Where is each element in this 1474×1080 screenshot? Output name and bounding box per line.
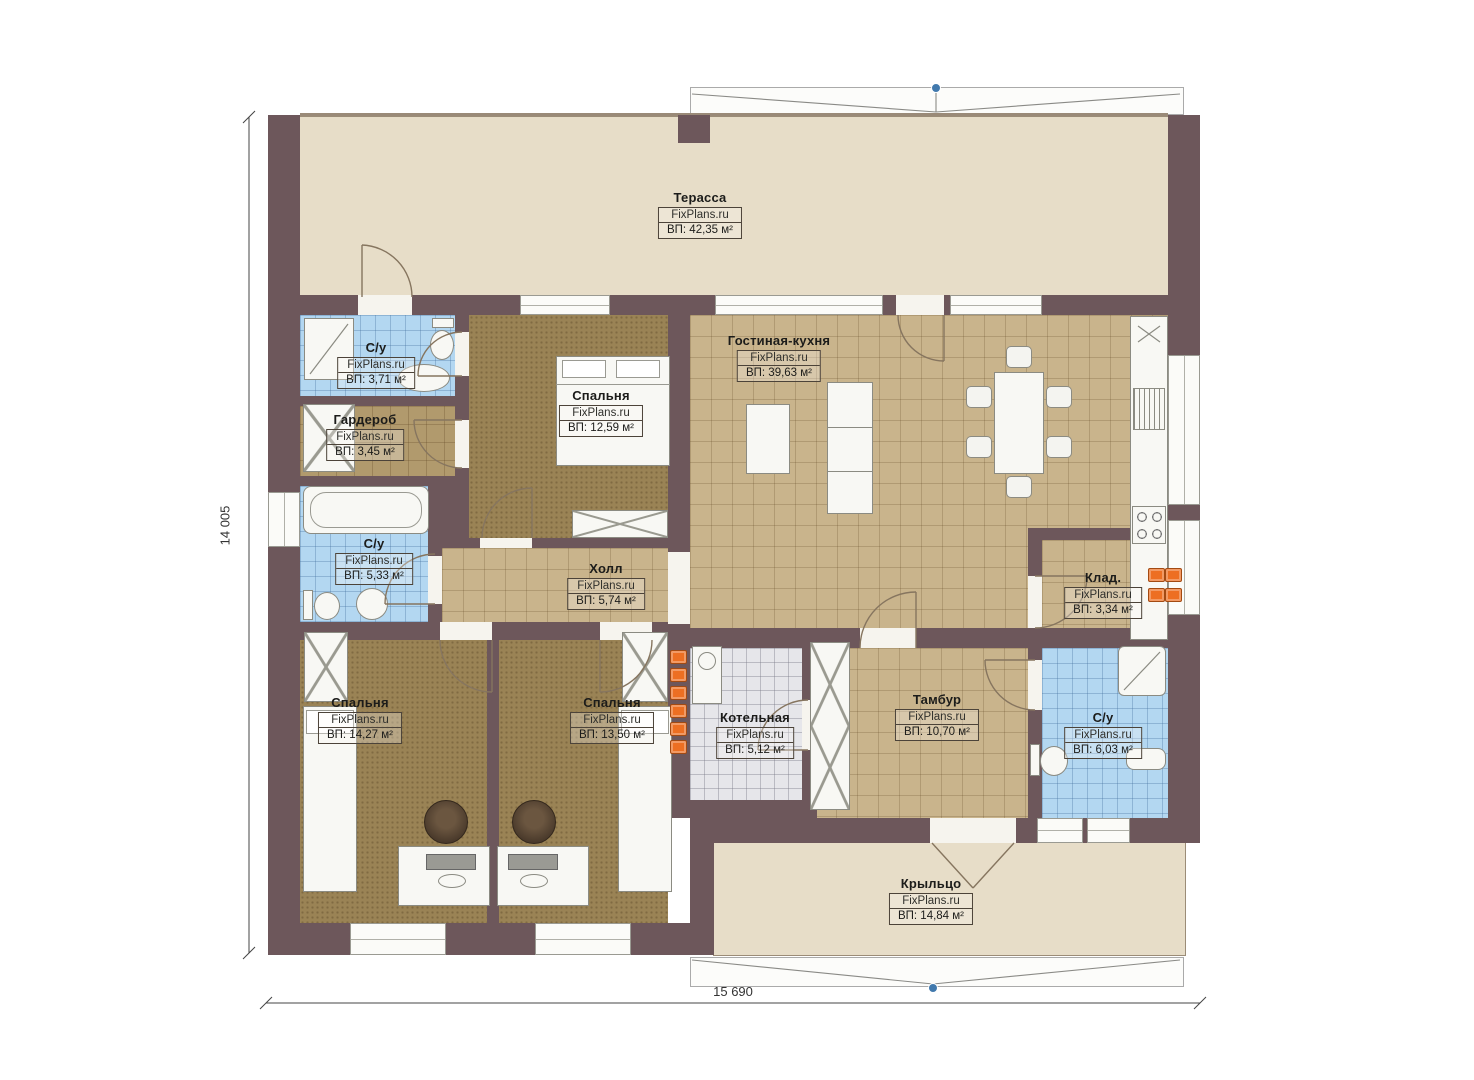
window-wc-bottom-1 (1037, 818, 1083, 843)
wall-boiler-bottom (690, 800, 817, 818)
pedestal-sink-wc-mid (356, 588, 388, 620)
closet-symbol-vestibule (810, 642, 850, 810)
coffee-table-symbol (746, 404, 790, 474)
brand-watermark: FixPlans.ru (890, 894, 972, 909)
room-title: Спальня (583, 695, 641, 710)
room-title: Терасса (674, 190, 727, 205)
room-area: ВП: 14,84 м² (890, 909, 972, 924)
valve-icon (670, 686, 687, 700)
room-title: Гардероб (333, 412, 396, 427)
monitor-symbol-bedroom-left (426, 854, 476, 870)
room-area: ВП: 12,59 м² (560, 421, 642, 436)
room-area: ВП: 5,33 м² (336, 569, 412, 584)
room-label-bedroom-top: Спальня FixPlans.ru ВП: 12,59 м² (559, 388, 643, 437)
toilet-bowl-wc-mid (314, 592, 340, 620)
door-gap-bedroom-left (440, 622, 492, 640)
room-title: Спальня (572, 388, 630, 403)
door-gap-wc-bottom (1028, 660, 1042, 710)
door-gap-living-vestibule (860, 628, 916, 648)
brand-watermark: FixPlans.ru (327, 430, 403, 445)
keyboard-symbol-bedroom-mid (520, 874, 548, 888)
wall-bedroom-hall-divider (442, 538, 668, 548)
room-title: Тамбур (913, 692, 961, 707)
room-area: ВП: 3,34 м² (1065, 603, 1141, 618)
room-title: Крыльцо (901, 876, 962, 891)
room-info-box: FixPlans.ru ВП: 5,74 м² (567, 578, 645, 610)
radiator-icon (1148, 568, 1165, 582)
room-info-box: FixPlans.ru ВП: 12,59 м² (559, 405, 643, 437)
room-area: ВП: 5,12 м² (717, 743, 793, 758)
brand-watermark: FixPlans.ru (1065, 728, 1141, 743)
dining-chair-top (1006, 346, 1032, 368)
room-title: Гостиная-кухня (728, 333, 830, 348)
door-gap-living-terrace (896, 295, 944, 315)
room-title: Спальня (331, 695, 389, 710)
stove-symbol (1132, 506, 1166, 544)
valve-icon (670, 650, 687, 664)
room-info-box: FixPlans.ru ВП: 5,33 м² (335, 553, 413, 585)
toilet-tank-wc-bottom (1030, 744, 1040, 776)
room-label-bedroom-mid: Спальня FixPlans.ru ВП: 13,50 м² (570, 695, 654, 744)
brand-watermark: FixPlans.ru (717, 728, 793, 743)
brand-watermark: FixPlans.ru (659, 208, 741, 223)
room-info-box: FixPlans.ru ВП: 39,63 м² (737, 350, 821, 382)
room-info-box: FixPlans.ru ВП: 42,35 м² (658, 207, 742, 239)
room-label-living-kitchen: Гостиная-кухня FixPlans.ru ВП: 39,63 м² (728, 333, 830, 382)
room-label-wc-top: С/у FixPlans.ru ВП: 3,71 м² (337, 340, 415, 389)
valve-icon (670, 722, 687, 736)
toilet-bowl-wc-top (430, 330, 454, 360)
door-gap-terrace (358, 295, 412, 315)
dining-chair-left-1 (966, 386, 992, 408)
room-info-box: FixPlans.ru ВП: 3,71 м² (337, 357, 415, 389)
room-area: ВП: 14,27 м² (319, 728, 401, 743)
room-info-box: FixPlans.ru ВП: 13,50 м² (570, 712, 654, 744)
radiator-icon (1165, 588, 1182, 602)
room-area: ВП: 5,74 м² (568, 594, 644, 609)
roof-canopy-top (690, 87, 1184, 115)
room-info-box: FixPlans.ru ВП: 5,12 м² (716, 727, 794, 759)
terrace-pillar (678, 115, 710, 143)
room-info-box: FixPlans.ru ВП: 6,03 м² (1064, 727, 1142, 759)
room-label-hall: Холл FixPlans.ru ВП: 5,74 м² (567, 561, 645, 610)
toilet-tank-wc-top (432, 318, 454, 328)
dining-table-symbol (994, 372, 1044, 474)
terrace-edge-line (300, 113, 1168, 116)
brand-watermark: FixPlans.ru (336, 554, 412, 569)
brand-watermark: FixPlans.ru (571, 713, 653, 728)
door-gap-bedroom-top (480, 538, 532, 548)
room-area: ВП: 3,45 м² (327, 445, 403, 460)
room-area: ВП: 10,70 м² (896, 725, 978, 740)
dining-chair-left-2 (966, 436, 992, 458)
valve-icon (670, 704, 687, 718)
room-label-bedroom-left: Спальня FixPlans.ru ВП: 14,27 м² (318, 695, 402, 744)
window-south-2 (535, 923, 631, 955)
bathtub-inner (310, 492, 422, 528)
office-chair-bedroom-mid (512, 800, 556, 844)
bed-blanket-line (556, 384, 670, 385)
opening-hall-living (668, 552, 690, 624)
window-north-2 (715, 295, 883, 315)
closet-symbol-bedroom-top (572, 510, 668, 538)
brand-watermark: FixPlans.ru (319, 713, 401, 728)
room-label-vestibule: Тамбур FixPlans.ru ВП: 10,70 м² (895, 692, 979, 741)
boiler-dial (698, 652, 716, 670)
dimension-height: 14 005 (217, 506, 232, 546)
dimension-width: 15 690 (713, 984, 753, 999)
window-south-1 (350, 923, 446, 955)
wall-porch-left (690, 818, 714, 955)
toilet-tank-wc-mid (303, 590, 313, 620)
pillow-1-bedroom-top (562, 360, 606, 378)
room-title: Клад. (1085, 570, 1121, 585)
room-title: С/у (366, 340, 387, 355)
radiator-icon (1165, 568, 1182, 582)
room-label-storage: Клад. FixPlans.ru ВП: 3,34 м² (1064, 570, 1142, 619)
brand-watermark: FixPlans.ru (896, 710, 978, 725)
room-info-box: FixPlans.ru ВП: 10,70 м² (895, 709, 979, 741)
room-title: С/у (1093, 710, 1114, 725)
wall-living-bottom (690, 628, 1168, 648)
room-info-box: FixPlans.ru ВП: 3,45 м² (326, 429, 404, 461)
room-label-wc-mid: С/у FixPlans.ru ВП: 5,33 м² (335, 536, 413, 585)
room-label-wardrobe: Гардероб FixPlans.ru ВП: 3,45 м² (326, 412, 404, 461)
brand-watermark: FixPlans.ru (560, 406, 642, 421)
brand-watermark: FixPlans.ru (568, 579, 644, 594)
brand-watermark: FixPlans.ru (1065, 588, 1141, 603)
door-gap-wc-mid (428, 556, 442, 604)
pillow-2-bedroom-top (616, 360, 660, 378)
dining-chair-bottom (1006, 476, 1032, 498)
door-gap-wardrobe (455, 420, 469, 468)
window-north-1 (520, 295, 610, 315)
dishwasher-symbol (1133, 388, 1165, 430)
room-area: ВП: 39,63 м² (738, 366, 820, 381)
monitor-symbol-bedroom-mid (508, 854, 558, 870)
wall-bottom-exterior (268, 923, 714, 955)
floor-plan: 14 005 15 690 Терасса FixPlans.ru ВП: 42… (0, 0, 1474, 1080)
door-gap-wc-top (455, 332, 469, 376)
closet-symbol-bedroom-mid (622, 632, 668, 702)
door-gap-porch (930, 818, 1016, 843)
room-info-box: FixPlans.ru ВП: 14,27 м² (318, 712, 402, 744)
room-label-terrace: Терасса FixPlans.ru ВП: 42,35 м² (658, 190, 742, 239)
window-west-1 (268, 492, 300, 547)
keyboard-symbol-bedroom-left (438, 874, 466, 888)
room-info-box: FixPlans.ru ВП: 3,34 м² (1064, 587, 1142, 619)
room-area: ВП: 6,03 м² (1065, 743, 1141, 758)
room-area: ВП: 42,35 м² (659, 223, 741, 238)
window-east-1 (1168, 355, 1200, 505)
sofa-symbol (827, 382, 873, 514)
room-title: С/у (364, 536, 385, 551)
room-title: Котельная (720, 710, 790, 725)
room-title: Холл (589, 561, 622, 576)
door-gap-storage (1028, 576, 1042, 628)
room-area: ВП: 13,50 м² (571, 728, 653, 743)
closet-symbol-bedroom-left (304, 632, 348, 702)
wall-wardrobe-wc-divider (300, 476, 469, 486)
brand-watermark: FixPlans.ru (338, 358, 414, 373)
window-wc-bottom-2 (1087, 818, 1130, 843)
room-info-box: FixPlans.ru ВП: 14,84 м² (889, 893, 973, 925)
valve-icon (670, 668, 687, 682)
window-north-3 (950, 295, 1042, 315)
radiator-icon (1148, 588, 1165, 602)
room-label-wc-bottom: С/у FixPlans.ru ВП: 6,03 м² (1064, 710, 1142, 759)
dining-chair-right-2 (1046, 436, 1072, 458)
room-label-boiler: Котельная FixPlans.ru ВП: 5,12 м² (716, 710, 794, 759)
brand-watermark: FixPlans.ru (738, 351, 820, 366)
shower-symbol-wc-bottom (1118, 646, 1166, 696)
room-label-porch: Крыльцо FixPlans.ru ВП: 14,84 м² (889, 876, 973, 925)
roof-canopy-bottom (690, 957, 1184, 987)
valve-icon (670, 740, 687, 754)
dining-chair-right-1 (1046, 386, 1072, 408)
room-area: ВП: 3,71 м² (338, 373, 414, 388)
office-chair-bedroom-left (424, 800, 468, 844)
